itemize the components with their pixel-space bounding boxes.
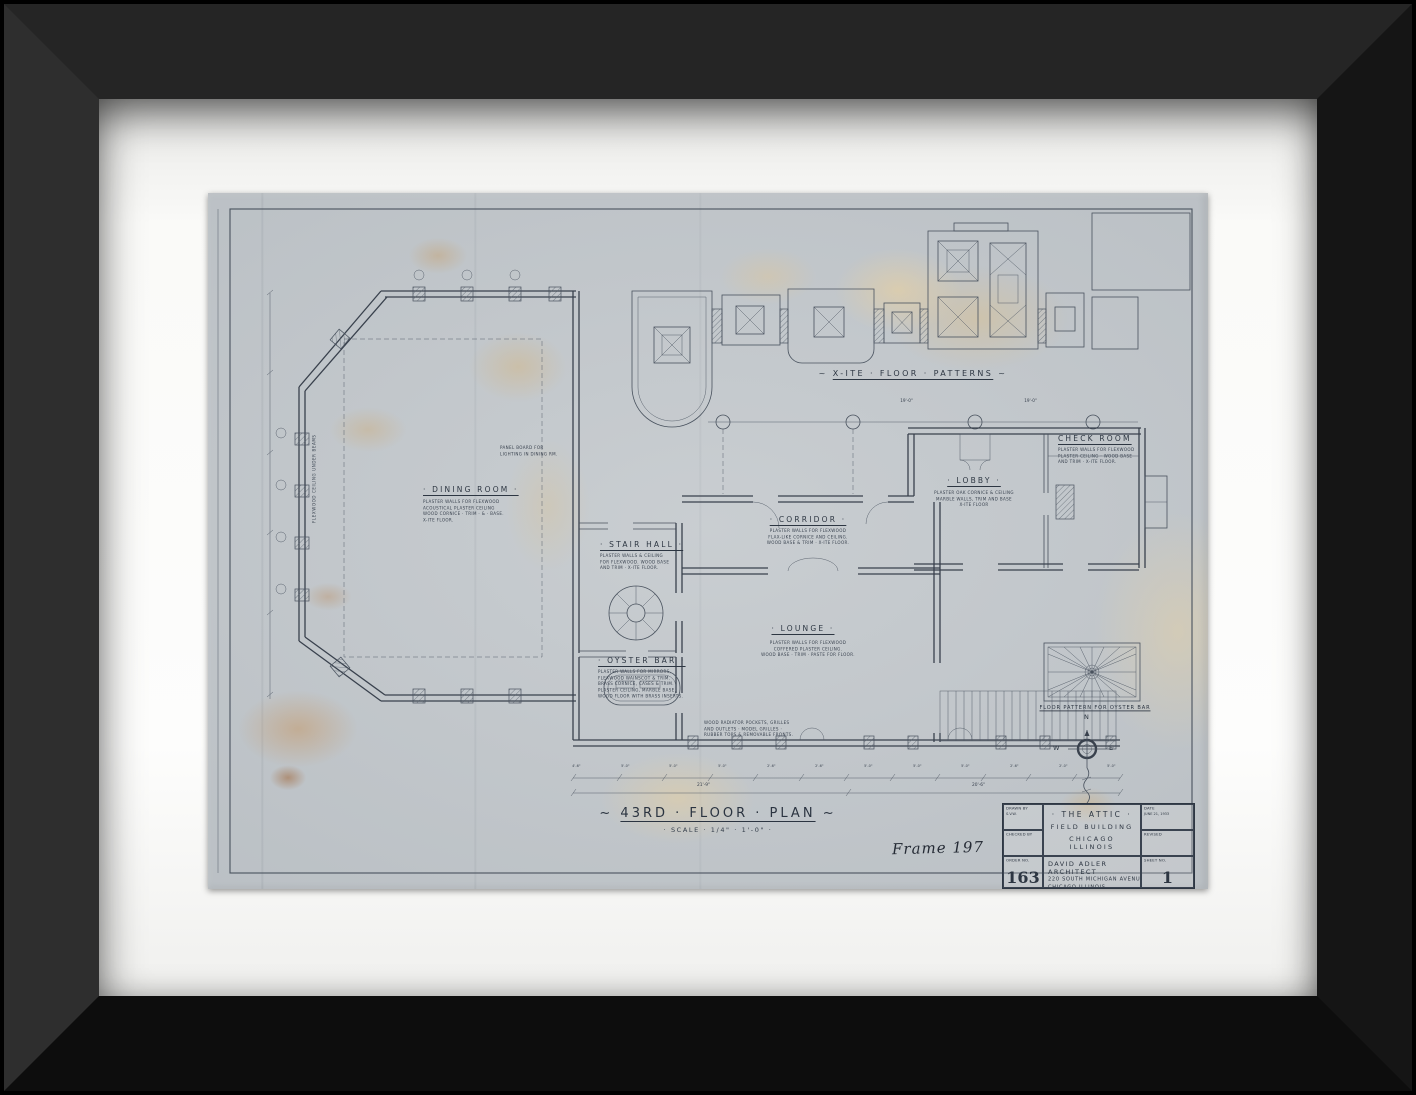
room-label-lounge: · LOUNGE · [728, 624, 878, 633]
drawing-title-text: 43RD · FLOOR · PLAN [620, 806, 815, 821]
architect-address: 220 SOUTH MICHIGAN AVENUE [1048, 876, 1111, 882]
dim-segment: 2'-6" [1010, 764, 1018, 768]
room-notes-stair-hall: PLASTER WALLS & CEILING FOR FLEXWOOD. WO… [600, 553, 728, 571]
dimension-19ft-right: 19'-0" [1024, 399, 1037, 404]
room-notes-lobby: PLASTER OAK CORNICE & CEILING MARBLE WAL… [910, 490, 1038, 508]
room-notes-dining: PLASTER WALLS FOR FLEXWOOD ACOUSTICAL PL… [423, 499, 551, 523]
dim-segment: 2'-6" [816, 764, 824, 768]
compass-east-label: E [1109, 744, 1113, 752]
frame-number-annotation: Frame 197 [892, 838, 984, 858]
architect-name: DAVID ADLER ARCHITECT [1048, 860, 1136, 876]
order-label: ORDER NO. [1006, 858, 1025, 862]
compass-north-label: N [1084, 713, 1089, 721]
dim-segment: 4'-6" [572, 764, 580, 768]
panel-board-note: PANEL BOARD FOR LIGHTING IN DINING RM. [500, 445, 628, 457]
dimension-lines [267, 290, 1123, 796]
oyster-pattern-caption: FLOOR PATTERN FOR OYSTER BAR [1031, 705, 1159, 711]
project-building: FIELD BUILDING [1046, 823, 1138, 831]
terrace-stairs [940, 691, 1116, 741]
dim-segment: 5'-0" [669, 764, 677, 768]
dim-segment: 5'-0" [864, 764, 872, 768]
title-block-order-no: ORDER NO. 163 [1003, 856, 1043, 888]
architect-city: CHICAGO ILLINOIS [1048, 884, 1111, 888]
dimension-19ft-left: 19'-0" [900, 399, 913, 404]
dim-segment: 2'-0" [1059, 764, 1067, 768]
date-label: DATE [1144, 806, 1170, 810]
radiator-note: WOOD RADIATOR POCKETS, GRILLES AND OUTLE… [704, 720, 832, 738]
mat-board: .w{stroke:#39414d;stroke-width:1.3;fill:… [99, 99, 1317, 996]
room-label-oyster-bar: · OYSTER BAR · [598, 656, 686, 665]
tilde-right: ~ [998, 369, 1007, 378]
oyster-floor-pattern-diagram [1044, 643, 1140, 701]
room-notes-lounge: PLASTER WALLS FOR FLEXWOOD COFFERED PLAS… [744, 640, 872, 658]
room-notes-corridor: PLASTER WALLS FOR FLEXWOOD FLAX-LIKE COR… [744, 528, 872, 546]
title-block: DRAWN BY S.V.W. · THE ATTIC · FIELD BUIL… [1002, 803, 1195, 889]
room-label-lobby: · LOBBY · [914, 476, 1034, 485]
compass-west-label: W [1053, 744, 1059, 752]
drawn-by-value: S.V.W. [1006, 812, 1023, 816]
drawing-title: ~ 43RD · FLOOR · PLAN ~ [528, 806, 908, 821]
checked-by-label: CHECKED BY [1006, 832, 1025, 836]
xite-pattern-panels [632, 213, 1190, 427]
title-block-checked-by: CHECKED BY [1003, 830, 1043, 856]
title-block-sheet-no: SHEET NO. 1 [1141, 856, 1194, 888]
xite-patterns-title-text: X-ITE · FLOOR · PATTERNS [833, 369, 994, 378]
tilde-left: ~ [599, 806, 613, 821]
tilde-right: ~ [823, 806, 837, 821]
sheet-label: SHEET NO. [1144, 858, 1170, 862]
dim-segment: 5'-0" [1108, 764, 1116, 768]
dim-segment: 5'-0" [913, 764, 921, 768]
project-name: · THE ATTIC · [1046, 810, 1138, 819]
dim-segment: 5'-0" [621, 764, 629, 768]
title-block-project: · THE ATTIC · FIELD BUILDING CHICAGO ILL… [1043, 804, 1141, 856]
flexwood-ceiling-note: FLEXWOOD CEILING UNDER BEAMS [312, 434, 317, 523]
room-notes-check-room: PLASTER WALLS FOR FLEXWOOD PLASTER CEILI… [1058, 447, 1186, 465]
framed-blueprint-photo: .w{stroke:#39414d;stroke-width:1.3;fill:… [0, 0, 1416, 1095]
room-label-dining: · DINING ROOM · [423, 485, 519, 494]
bottom-dimension-row: 4'-6" 5'-0" 5'-0" 5'-0" 2'-6" 2'-6" 5'-0… [568, 762, 1120, 770]
dim-segment: 5'-0" [962, 764, 970, 768]
title-block-drawn-by: DRAWN BY S.V.W. [1003, 804, 1043, 830]
title-block-architect: DAVID ADLER ARCHITECT 220 SOUTH MICHIGAN… [1043, 856, 1141, 888]
date-value: JUNE 21, 1933 [1144, 812, 1168, 816]
order-number: 163 [1006, 868, 1040, 887]
revised-label: REVISED [1144, 832, 1170, 836]
drawn-by-label: DRAWN BY [1006, 806, 1025, 810]
room-label-corridor: · CORRIDOR · [743, 515, 873, 524]
title-block-date: DATE JUNE 21, 1933 [1141, 804, 1194, 830]
title-block-revised: REVISED [1141, 830, 1194, 856]
project-city: CHICAGO ILLINOIS [1046, 835, 1138, 851]
scale-note: · SCALE · 1/4" · 1'-0" · [528, 826, 908, 834]
dim-total-right: 20'-6" [972, 783, 985, 788]
dim-segment: 5'-0" [718, 764, 726, 768]
dim-total-left: 21'-9" [697, 783, 710, 788]
dim-segment: 2'-6" [767, 764, 775, 768]
blueprint-paper: .w{stroke:#39414d;stroke-width:1.3;fill:… [208, 193, 1208, 889]
room-label-stair-hall: · STAIR HALL · [600, 540, 683, 549]
room-notes-oyster-bar: PLASTER WALLS FOR MIRRORS, FLEXWOOD WAIN… [598, 669, 737, 699]
sheet-number: 1 [1144, 868, 1191, 887]
south-wall [573, 728, 1120, 749]
tilde-left: ~ [819, 369, 828, 378]
room-label-check-room: CHECK ROOM [1058, 434, 1132, 443]
xite-patterns-title: ~ X-ITE · FLOOR · PATTERNS ~ [778, 369, 1048, 378]
